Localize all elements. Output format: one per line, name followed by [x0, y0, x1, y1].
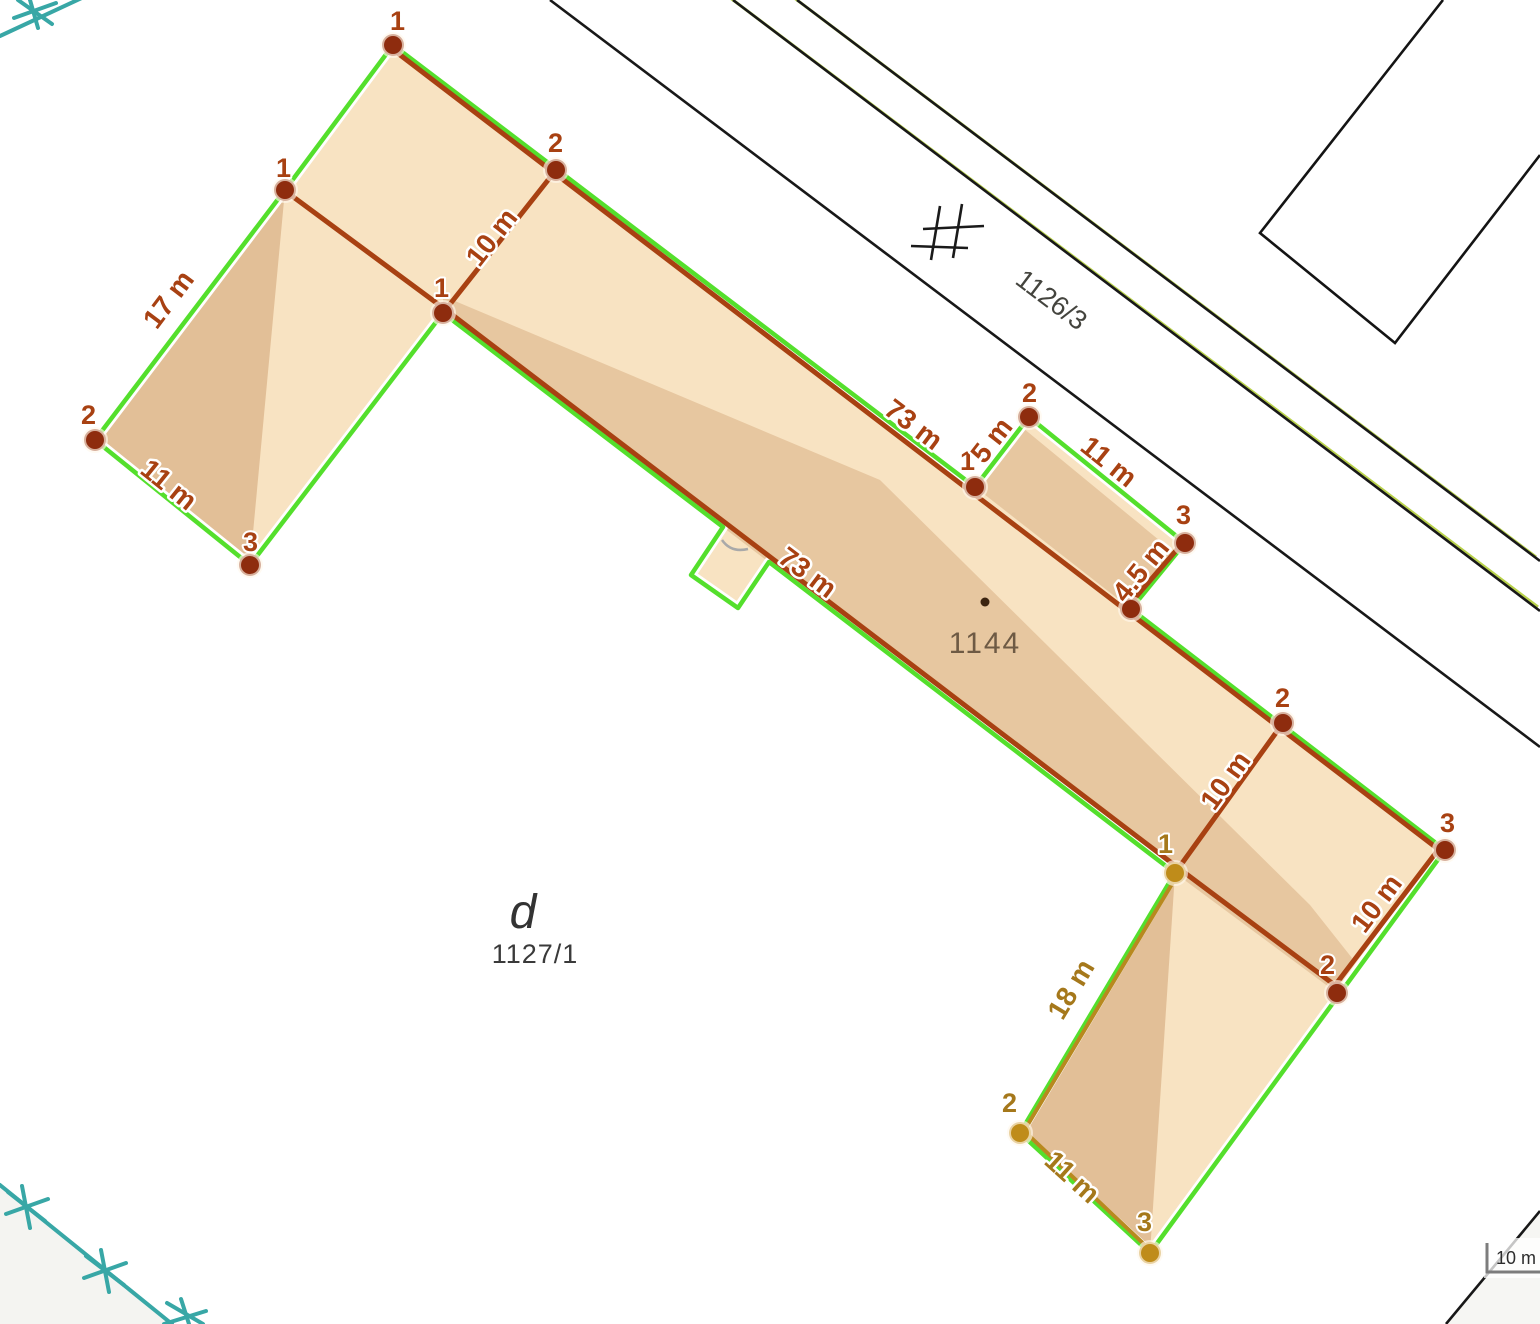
vertex-dot[interactable]: [432, 302, 454, 324]
vertex-number: 3: [1137, 1207, 1152, 1237]
scale-bar: 10 m: [1484, 1238, 1540, 1278]
vertex-dot[interactable]: [964, 476, 986, 498]
parcel-centroid-dot: [981, 598, 990, 607]
vertex-number: 2: [1022, 378, 1037, 408]
map-canvas[interactable]: 1 2 1 2 3 1 1 2 3 2 3 2 1 2 3 10 m 73 m …: [0, 0, 1540, 1324]
vertex-number: 1: [1158, 829, 1173, 859]
vertex-dot[interactable]: [239, 554, 261, 576]
parcel-label-1144: 1144: [949, 627, 1022, 660]
vertex-number: 1: [276, 153, 291, 183]
vertex-dot[interactable]: [84, 429, 106, 451]
vertex-number: 2: [81, 400, 96, 430]
vertex-dot[interactable]: [1174, 532, 1196, 554]
vertex-number: 2: [1275, 683, 1290, 713]
vertex-dot[interactable]: [382, 34, 404, 56]
vertex-dot[interactable]: [1434, 839, 1456, 861]
vertex-dot[interactable]: [1272, 712, 1294, 734]
vertex-number: 3: [243, 527, 258, 557]
vertex-dot[interactable]: [1018, 406, 1040, 428]
vertex-dot-gold[interactable]: [1139, 1242, 1161, 1264]
vertex-number: 1: [390, 6, 405, 36]
vertex-number: 2: [1002, 1088, 1017, 1118]
subparcel-label-d: d: [510, 886, 538, 939]
vertex-dot-gold[interactable]: [1009, 1122, 1031, 1144]
vertex-number: 2: [1320, 950, 1335, 980]
vertex-number: 3: [1176, 500, 1191, 530]
vertex-number: 2: [548, 128, 563, 158]
vertex-dot[interactable]: [1326, 982, 1348, 1004]
vertex-dot[interactable]: [545, 159, 567, 181]
vertex-dot-gold[interactable]: [1164, 862, 1186, 884]
scale-bar-label: 10 m: [1496, 1248, 1536, 1268]
parcel-label-1127-1: 1127/1: [492, 939, 579, 969]
vertex-number: 3: [1440, 808, 1455, 838]
vertex-number: 1: [434, 273, 449, 303]
cadastral-map-svg[interactable]: 1 2 1 2 3 1 1 2 3 2 3 2 1 2 3 10 m 73 m …: [0, 0, 1540, 1324]
